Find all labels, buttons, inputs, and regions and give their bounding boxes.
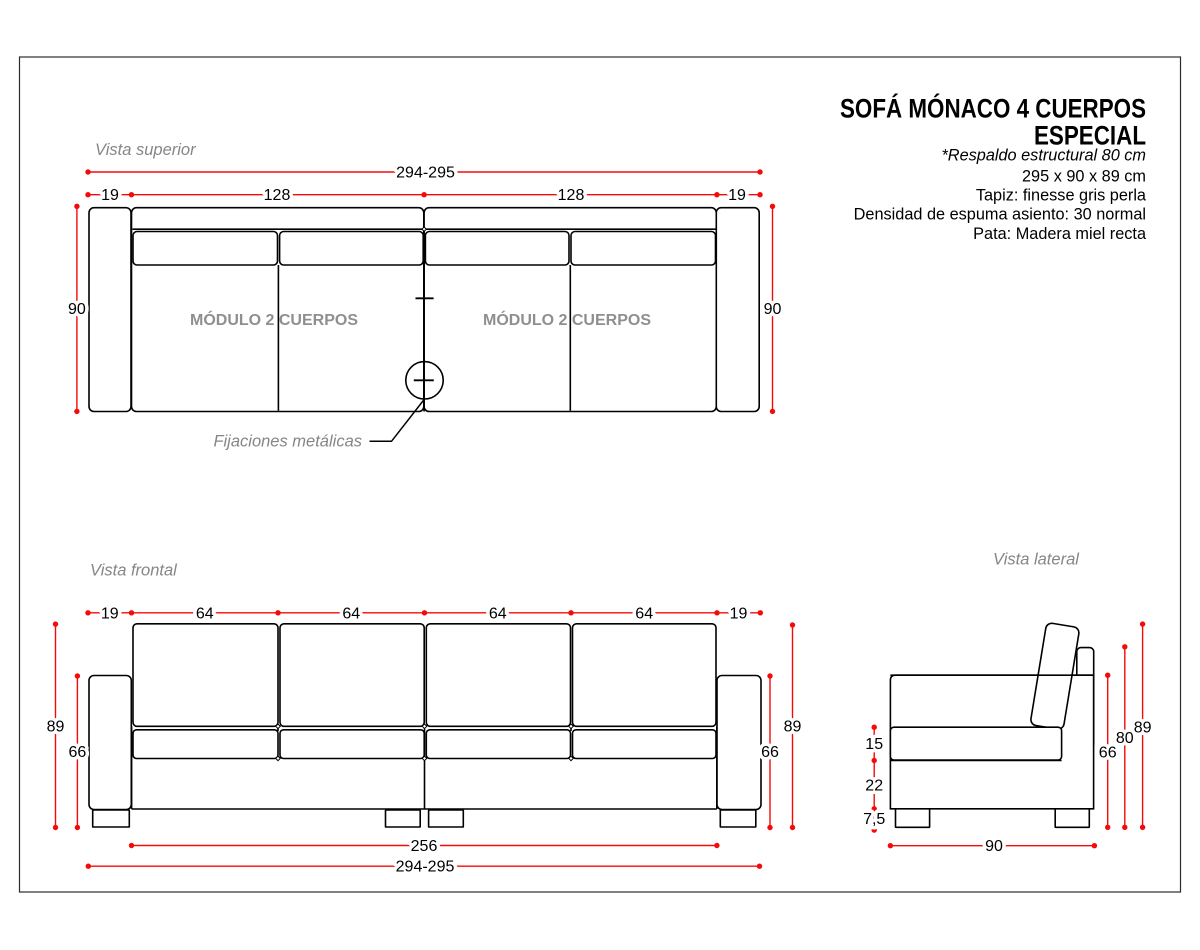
svg-text:64: 64 <box>635 605 653 622</box>
svg-text:19: 19 <box>730 605 748 622</box>
svg-text:294-295: 294-295 <box>396 859 455 876</box>
svg-text:64: 64 <box>489 605 507 622</box>
svg-text:256: 256 <box>411 838 438 855</box>
svg-text:Fijaciones metálicas: Fijaciones metálicas <box>213 433 362 451</box>
svg-text:89: 89 <box>784 719 802 736</box>
svg-text:Vista lateral: Vista lateral <box>993 551 1080 569</box>
svg-text:128: 128 <box>558 187 585 204</box>
svg-text:90: 90 <box>68 301 86 318</box>
svg-text:90: 90 <box>985 838 1003 855</box>
svg-text:Vista frontal: Vista frontal <box>90 562 178 580</box>
svg-text:Tapiz: finesse gris perla: Tapiz: finesse gris perla <box>976 187 1147 205</box>
svg-text:19: 19 <box>101 187 119 204</box>
svg-text:295 x 90 x 89 cm: 295 x 90 x 89 cm <box>1022 168 1146 186</box>
svg-text:294-295: 294-295 <box>396 165 455 182</box>
svg-text:Pata: Madera miel recta: Pata: Madera miel recta <box>973 225 1147 243</box>
svg-text:*Respaldo estructural 80 cm: *Respaldo estructural 80 cm <box>941 147 1146 165</box>
svg-text:66: 66 <box>1099 744 1117 761</box>
svg-text:22: 22 <box>865 778 883 795</box>
svg-text:128: 128 <box>264 187 291 204</box>
svg-text:64: 64 <box>342 605 360 622</box>
svg-text:19: 19 <box>728 187 746 204</box>
svg-text:89: 89 <box>1134 720 1152 737</box>
svg-text:MÓDULO 2 CUERPOS: MÓDULO 2 CUERPOS <box>483 310 651 329</box>
svg-text:Densidad de espuma asiento: 30: Densidad de espuma asiento: 30 normal <box>854 206 1146 224</box>
svg-text:66: 66 <box>761 744 779 761</box>
svg-text:90: 90 <box>764 301 782 318</box>
svg-text:89: 89 <box>47 719 65 736</box>
svg-text:Vista superior: Vista superior <box>95 141 197 159</box>
svg-text:7,5: 7,5 <box>863 811 885 828</box>
svg-text:66: 66 <box>69 744 87 761</box>
svg-text:15: 15 <box>865 736 883 753</box>
svg-text:MÓDULO 2 CUERPOS: MÓDULO 2 CUERPOS <box>190 310 358 329</box>
svg-text:SOFÁ MÓNACO 4 CUERPOS: SOFÁ MÓNACO 4 CUERPOS <box>840 94 1146 124</box>
svg-text:19: 19 <box>101 605 119 622</box>
svg-text:64: 64 <box>196 605 214 622</box>
svg-text:80: 80 <box>1116 730 1134 747</box>
